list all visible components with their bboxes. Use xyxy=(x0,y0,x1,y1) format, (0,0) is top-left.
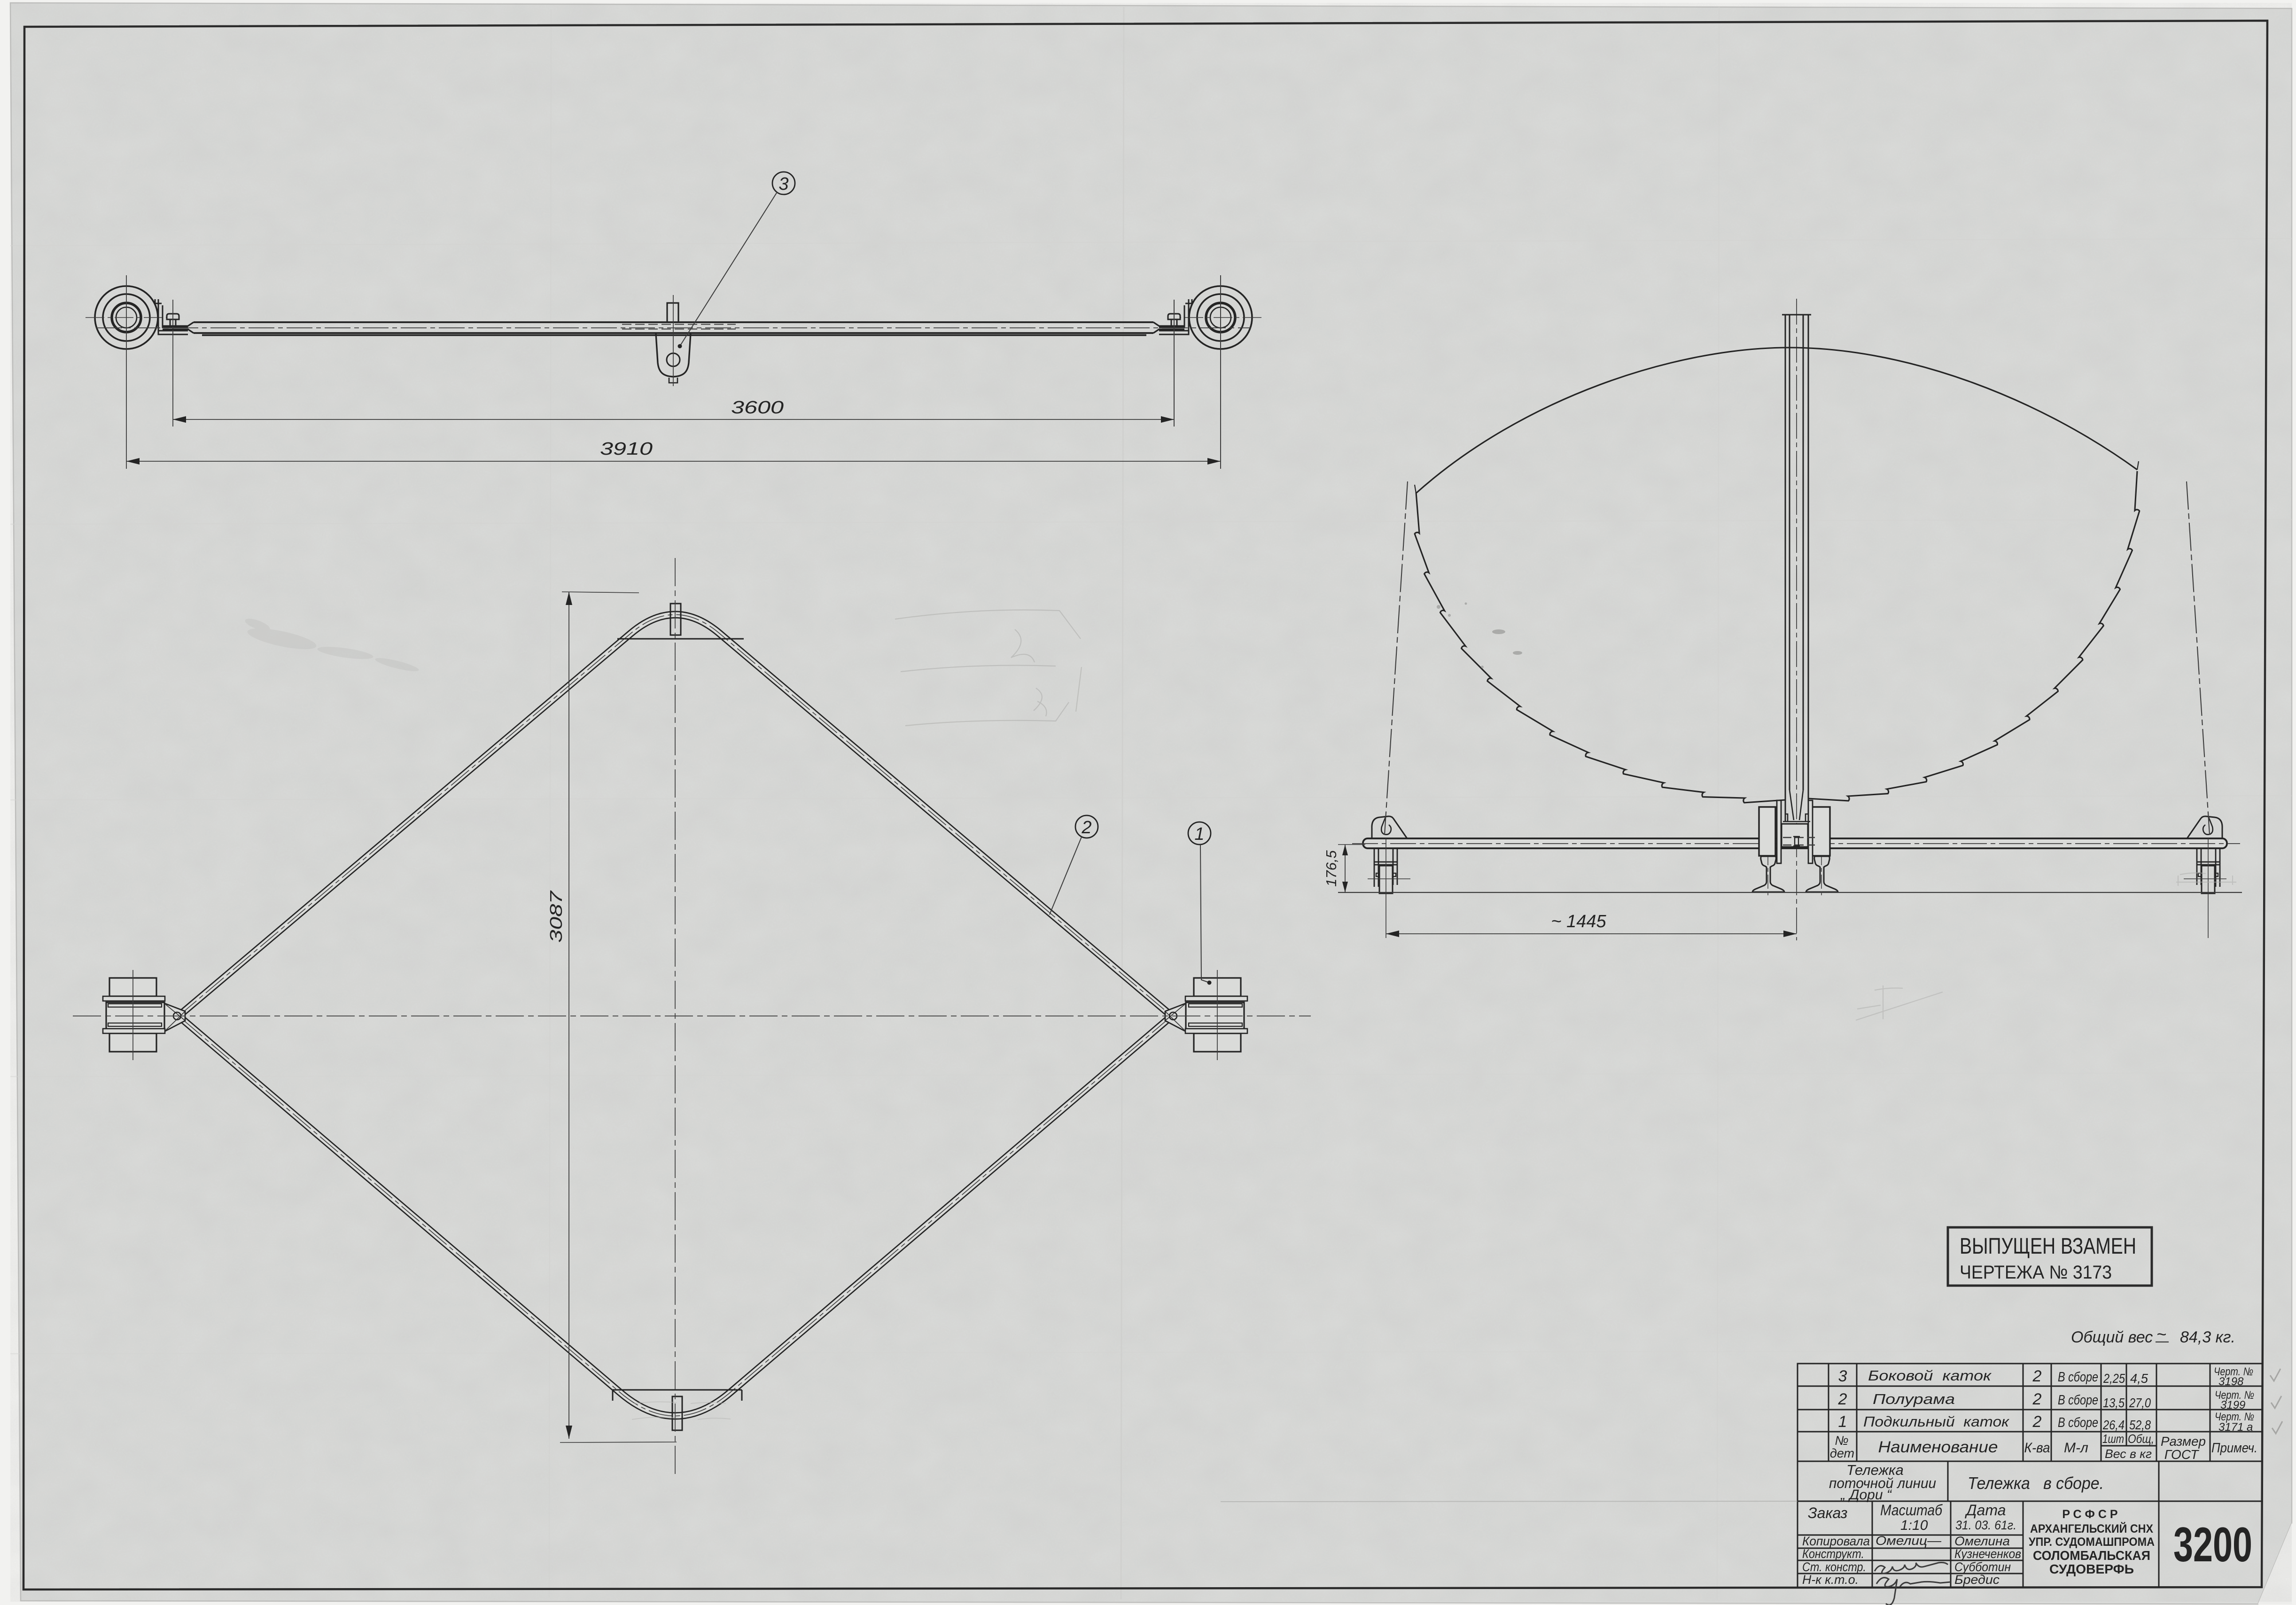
svg-text:М-л: М-л xyxy=(2064,1440,2088,1456)
svg-text:Примеч.: Примеч. xyxy=(2211,1441,2257,1456)
svg-text:№: № xyxy=(1835,1434,1848,1448)
svg-text:УПР. СУДОМАШПРОМА: УПР. СУДОМАШПРОМА xyxy=(2029,1535,2155,1549)
svg-text:Копировала: Копировала xyxy=(1802,1534,1870,1548)
svg-text:ГОСТ: ГОСТ xyxy=(2164,1447,2199,1462)
svg-text:ЧЕРТЕЖА № 3173: ЧЕРТЕЖА № 3173 xyxy=(1960,1262,2112,1283)
svg-text:2: 2 xyxy=(1838,1390,1847,1408)
svg-text:3: 3 xyxy=(778,174,788,194)
svg-text:Субботин: Субботин xyxy=(1954,1560,2011,1574)
svg-text:~: ~ xyxy=(2156,1325,2166,1344)
svg-text:Боковой каток: Боковой каток xyxy=(1868,1367,1992,1384)
svg-text:26,4: 26,4 xyxy=(2102,1418,2125,1432)
svg-text:АРХАНГЕЛЬСКИЙ СНХ: АРХАНГЕЛЬСКИЙ СНХ xyxy=(2030,1521,2153,1535)
svg-text:4,5: 4,5 xyxy=(2130,1371,2148,1386)
svg-text:РСФСР: РСФСР xyxy=(2062,1508,2121,1521)
svg-text:3171 а: 3171 а xyxy=(2218,1421,2253,1434)
svg-text:Вес в кг: Вес в кг xyxy=(2105,1447,2152,1461)
svg-text:3087: 3087 xyxy=(546,890,566,943)
svg-text:2: 2 xyxy=(2032,1413,2042,1431)
svg-text:СОЛОМБАЛЬСКАЯ: СОЛОМБАЛЬСКАЯ xyxy=(2033,1548,2150,1563)
svg-text:1:10: 1:10 xyxy=(1900,1518,1928,1533)
svg-text:„ Дори “: „ Дори “ xyxy=(1840,1487,1892,1503)
svg-text:3200: 3200 xyxy=(2173,1518,2252,1572)
svg-text:Общий вес: Общий вес xyxy=(2071,1328,2153,1346)
svg-text:В сборе: В сборе xyxy=(2058,1370,2098,1385)
svg-text:3198: 3198 xyxy=(2218,1375,2244,1388)
svg-text:3199: 3199 xyxy=(2220,1399,2245,1411)
svg-text:84,3 кг.: 84,3 кг. xyxy=(2180,1328,2235,1346)
svg-text:Конструкт.: Конструкт. xyxy=(1802,1547,1864,1561)
svg-text:СУДОВЕРФЬ: СУДОВЕРФЬ xyxy=(2049,1562,2134,1576)
svg-text:52,8: 52,8 xyxy=(2129,1418,2151,1432)
svg-text:Бредис: Бредис xyxy=(1954,1573,2000,1587)
svg-text:3: 3 xyxy=(1838,1367,1847,1385)
svg-text:2: 2 xyxy=(2032,1390,2042,1408)
svg-text:27,0: 27,0 xyxy=(2129,1396,2151,1410)
svg-text:31. 03. 61г.: 31. 03. 61г. xyxy=(1955,1518,2016,1532)
svg-text:К-ва: К-ва xyxy=(2024,1440,2050,1456)
svg-text:2: 2 xyxy=(1081,818,1091,837)
svg-text:ВЫПУЩЕН ВЗАМЕН: ВЫПУЩЕН ВЗАМЕН xyxy=(1960,1234,2136,1259)
svg-text:Тележка в сборе.: Тележка в сборе. xyxy=(1968,1473,2104,1493)
svg-text:1шт: 1шт xyxy=(2102,1432,2124,1446)
svg-text:Кузнеченков: Кузнеченков xyxy=(1954,1547,2021,1561)
svg-text:Наименование: Наименование xyxy=(1878,1438,1998,1456)
svg-text:дет: дет xyxy=(1830,1446,1854,1460)
svg-text:Омелиц—: Омелиц— xyxy=(1876,1534,1942,1548)
svg-text:Ст. констр.: Ст. констр. xyxy=(1802,1560,1866,1574)
svg-text:Подкильный каток: Подкильный каток xyxy=(1863,1413,2009,1430)
svg-text:3910: 3910 xyxy=(600,439,653,459)
svg-text:Дата: Дата xyxy=(1965,1502,2006,1519)
svg-text:Общ,: Общ, xyxy=(2128,1432,2154,1446)
svg-text:Масштаб: Масштаб xyxy=(1880,1502,1943,1519)
svg-text:Н-к к.т.о.: Н-к к.т.о. xyxy=(1802,1573,1859,1587)
svg-text:176,5: 176,5 xyxy=(1323,850,1339,886)
svg-text:В сборе: В сборе xyxy=(2058,1415,2098,1430)
svg-text:Заказ: Заказ xyxy=(1808,1504,1848,1521)
svg-text:Полурама: Полурама xyxy=(1873,1391,1955,1407)
svg-text:Омелина: Омелина xyxy=(1954,1534,2010,1548)
svg-text:Размер: Размер xyxy=(2161,1434,2206,1449)
svg-text:2: 2 xyxy=(2032,1367,2042,1385)
svg-text:1: 1 xyxy=(1194,824,1204,844)
svg-text:13,5: 13,5 xyxy=(2103,1396,2125,1410)
svg-text:2,25: 2,25 xyxy=(2103,1371,2125,1386)
svg-text:1: 1 xyxy=(1838,1413,1847,1431)
svg-text:3600: 3600 xyxy=(731,398,784,418)
svg-text:В сборе: В сборе xyxy=(2058,1393,2098,1408)
svg-text:~ 1445: ~ 1445 xyxy=(1551,912,1606,931)
